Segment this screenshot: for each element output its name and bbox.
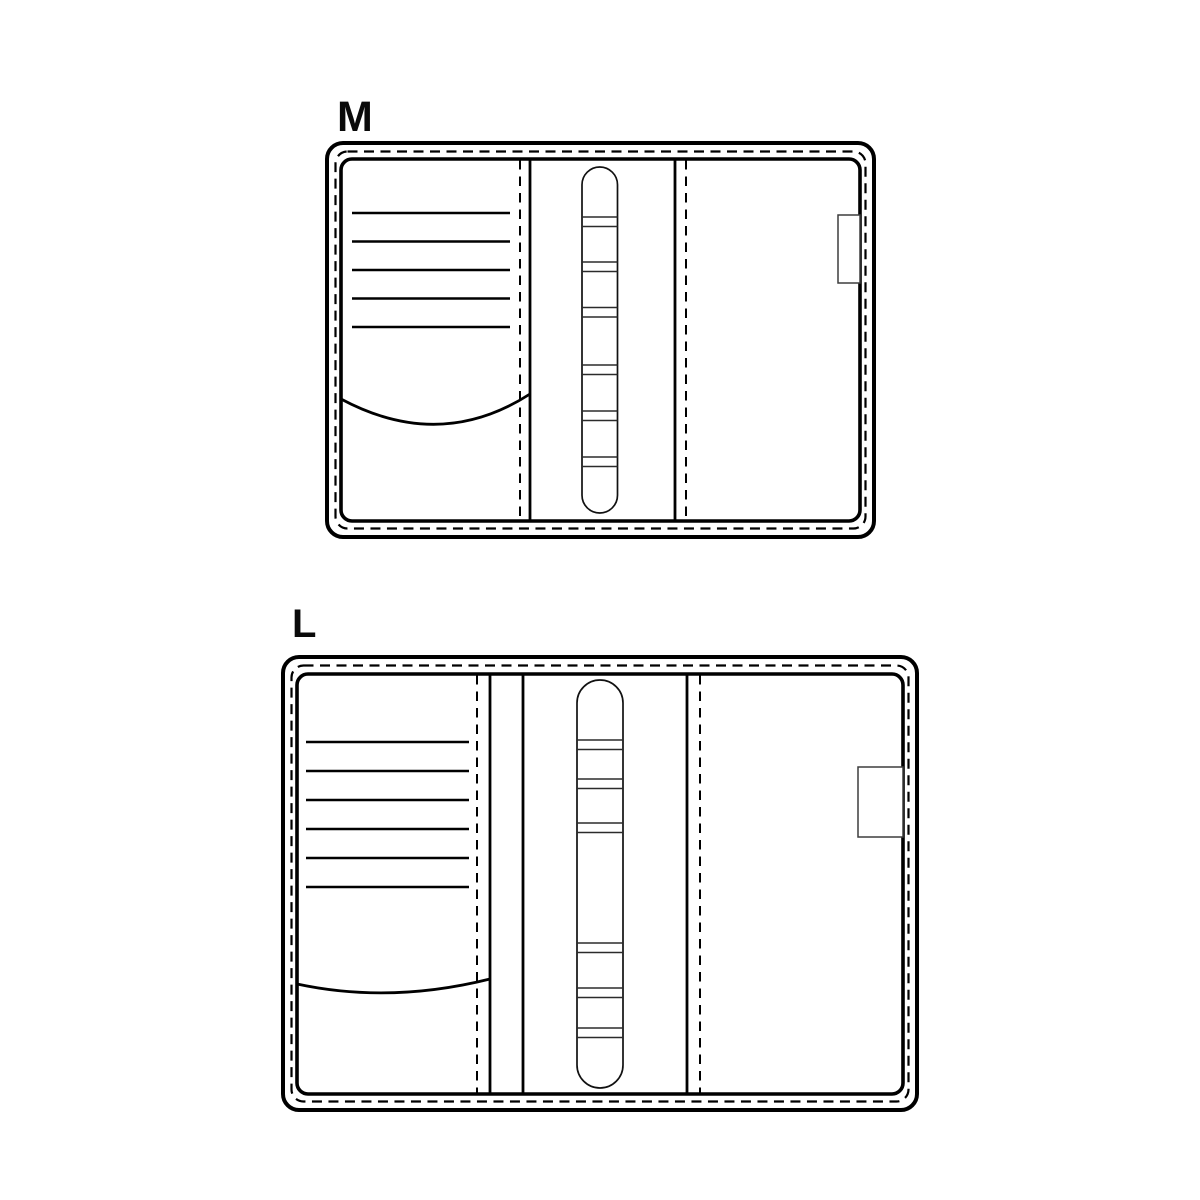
- pen-loop: [577, 680, 623, 1088]
- diagram-size-m: M: [327, 93, 874, 537]
- closure-tab: [838, 215, 860, 283]
- pen-loop: [582, 167, 618, 513]
- diagram-size-l: L: [283, 602, 917, 1110]
- size-label-l: L: [292, 602, 317, 646]
- size-label-m: M: [337, 93, 373, 141]
- notebook-cover-size-diagrams: M: [0, 0, 1200, 1200]
- line-drawing-canvas: M: [0, 0, 1200, 1200]
- closure-tab: [858, 767, 903, 837]
